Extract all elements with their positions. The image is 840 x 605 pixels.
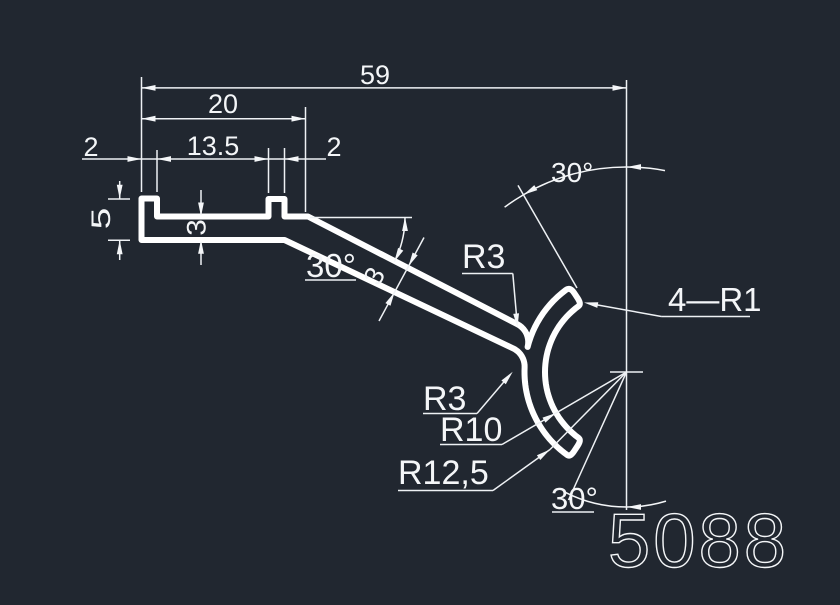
svg-text:59: 59 <box>360 60 390 90</box>
svg-text:30°: 30° <box>551 481 598 516</box>
svg-text:2: 2 <box>326 132 341 162</box>
svg-text:3: 3 <box>182 219 212 236</box>
svg-text:2: 2 <box>83 132 98 162</box>
svg-text:4—R1: 4—R1 <box>668 281 762 318</box>
svg-text:20: 20 <box>208 89 238 119</box>
svg-text:R10: R10 <box>440 411 502 449</box>
svg-text:30°: 30° <box>306 247 356 284</box>
svg-text:5088: 5088 <box>608 499 789 584</box>
svg-text:13.5: 13.5 <box>187 131 240 161</box>
svg-text:R12,5: R12,5 <box>398 454 489 492</box>
svg-text:30°: 30° <box>551 157 593 188</box>
svg-text:R3: R3 <box>462 238 505 276</box>
svg-text:5: 5 <box>87 208 117 230</box>
